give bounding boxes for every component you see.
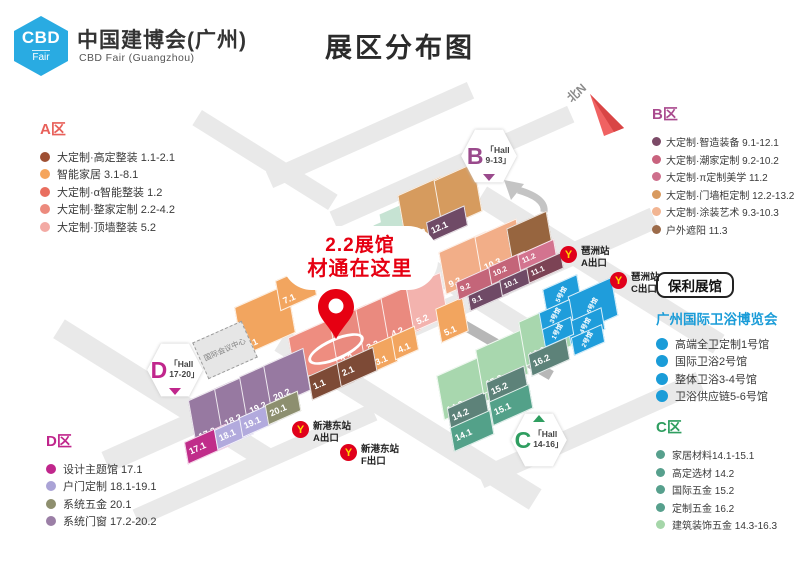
legend-zone-c: C区 家居材料14.1-15.1 高定选材 14.2 国际五金 15.2 定制五… xyxy=(656,416,777,534)
poly-expo-title: 广州国际卫浴博览会 xyxy=(656,308,778,328)
legend-dot xyxy=(656,338,668,350)
legend-dot xyxy=(46,481,56,491)
highlight-callout: 2.2展馆 材通在这里 xyxy=(282,226,438,290)
hall-label: 12.1 xyxy=(430,220,450,235)
hex-range: 「Hall14-16」 xyxy=(533,430,563,450)
hall-label: 11.1 xyxy=(530,265,546,278)
legend-dot xyxy=(40,152,50,162)
hall-label: 9.2 xyxy=(459,282,472,293)
legend-item: 高定选材 14.2 xyxy=(656,464,777,482)
legend-dot xyxy=(40,169,50,179)
legend-dot xyxy=(656,520,665,529)
legend-dot xyxy=(46,464,56,474)
legend-dot xyxy=(652,137,661,146)
hex-pointer xyxy=(169,388,181,395)
hex-range: 「Hall9-13」 xyxy=(486,146,512,166)
hall-c-marker: C 「Hall14-16」 xyxy=(510,412,568,468)
location-pin-icon xyxy=(316,288,356,340)
legend-item: 大定制·涂装艺术 9.3-10.3 xyxy=(652,203,794,221)
callout-line1: 2.2展馆 xyxy=(325,235,394,257)
metro-xingangdong-exit-f: Y 新港东站F出口 xyxy=(340,444,399,468)
cbd-fair-logo: CBD Fair xyxy=(14,16,68,76)
metro-label: 新港东站A出口 xyxy=(313,421,351,445)
legend-item: 智能家居 3.1-8.1 xyxy=(40,166,175,184)
hall-label: 16.2 xyxy=(532,353,552,368)
hall-label: 7.1 xyxy=(282,293,297,306)
hall-d-marker: D 「Hall17-20」 xyxy=(146,342,204,398)
hex-letter: D xyxy=(151,359,168,382)
hall-label: 18.1 xyxy=(218,427,238,442)
legend-dot xyxy=(656,503,665,512)
legend-item: 建筑装饰五金 14.3-16.3 xyxy=(656,516,777,534)
legend-dot xyxy=(40,204,50,214)
hex-range: 「Hall17-20」 xyxy=(169,360,199,380)
legend-dot xyxy=(652,155,661,164)
legend-item: 大定制·α智能整装 1.2 xyxy=(40,183,175,201)
hall-label: 14.1 xyxy=(454,427,474,442)
legend-item: 大定制·门墙柜定制 12.2-13.2 xyxy=(652,186,794,204)
page-title: 展区分布图 xyxy=(325,26,475,65)
legend-item: 大定制·潮家定制 9.2-10.2 xyxy=(652,151,794,169)
legend-dot xyxy=(656,485,665,494)
legend-dot xyxy=(46,516,56,526)
logo-sub: Fair xyxy=(32,50,49,63)
hall-label: 10.1 xyxy=(503,277,519,290)
hall-label: 2号馆 xyxy=(581,331,595,349)
legend-item: 国际五金 15.2 xyxy=(656,481,777,499)
hall-label: 5.2 xyxy=(415,313,430,326)
legend-item: 高端全卫定制1号馆 xyxy=(656,335,778,353)
hex-pointer xyxy=(483,174,495,181)
legend-dot xyxy=(652,225,661,234)
legend-item: 户门定制 18.1-19.1 xyxy=(46,478,157,496)
legend-item: 定制五金 16.2 xyxy=(656,499,777,517)
legend-item: 户外遮阳 11.3 xyxy=(652,221,794,239)
north-arrow-icon xyxy=(584,92,628,142)
legend-dot xyxy=(656,390,668,402)
hall-label: 4.1 xyxy=(397,342,412,355)
legend-dot xyxy=(40,222,50,232)
legend-item: 国际卫浴2号馆 xyxy=(656,353,778,371)
legend-dot xyxy=(652,172,661,181)
hall-label: 20.1 xyxy=(268,402,288,417)
legend-item: 大定制·整家定制 2.2-4.2 xyxy=(40,201,175,219)
poly-badge: 保利展馆 xyxy=(656,272,734,298)
hall-b-marker: B 「Hall9-13」 xyxy=(460,128,518,184)
hall-label: 5.1 xyxy=(443,325,458,338)
legend-item: 设计主题馆 17.1 xyxy=(46,460,157,478)
hall-label: 17.1 xyxy=(188,440,208,455)
legend-dot xyxy=(656,355,668,367)
fair-title-en: CBD Fair (Guangzhou) xyxy=(79,52,194,64)
legend-zone-d: D区 设计主题馆 17.1 户门定制 18.1-19.1 系统五金 20.1 系… xyxy=(46,430,157,530)
legend-zone-b: B区 大定制·智造装备 9.1-12.1 大定制·潮家定制 9.2-10.2 大… xyxy=(652,103,794,238)
legend-d-title: D区 xyxy=(46,430,157,451)
legend-item: 大定制·顶墙整装 5.2 xyxy=(40,218,175,236)
metro-icon: Y xyxy=(292,421,309,438)
hall-label: 1.1 xyxy=(312,378,327,391)
poly-hall-legend: 保利展馆 广州国际卫浴博览会 高端全卫定制1号馆 国际卫浴2号馆 整体卫浴3-4… xyxy=(656,272,778,405)
legend-zone-a: A区 大定制·高定整装 1.1-2.1 智能家居 3.1-8.1 大定制·α智能… xyxy=(40,118,175,236)
hex-letter: B xyxy=(467,145,484,168)
metro-icon: Y xyxy=(560,246,577,263)
metro-xingangdong-exit-a: Y 新港东站A出口 xyxy=(292,421,351,445)
exhibition-map-page: CBD Fair 中国建博会(广州) CBD Fair (Guangzhou) … xyxy=(0,0,800,569)
legend-dot xyxy=(656,450,665,459)
legend-item: 卫浴供应链5-6号馆 xyxy=(656,388,778,406)
legend-a-title: A区 xyxy=(40,118,175,139)
legend-dot xyxy=(652,190,661,199)
hall-label: 19.1 xyxy=(242,415,262,430)
legend-dot xyxy=(652,207,661,216)
legend-c-title: C区 xyxy=(656,416,777,437)
hall-label: 2.1 xyxy=(341,364,356,377)
legend-b-title: B区 xyxy=(652,103,794,124)
callout-line2: 材通在这里 xyxy=(308,258,413,281)
legend-item: 系统门窗 17.2-20.2 xyxy=(46,513,157,531)
legend-dot xyxy=(40,187,50,197)
metro-pazhou-exit-c: Y 琶洲站C出口 xyxy=(610,272,660,296)
metro-icon: Y xyxy=(340,444,357,461)
metro-pazhou-exit-a: Y 琶洲站A出口 xyxy=(560,246,610,270)
metro-label: 琶洲站A出口 xyxy=(581,246,610,270)
legend-dot xyxy=(46,499,56,509)
legend-item: 大定制·π定制美学 11.2 xyxy=(652,168,794,186)
hall-label: 9.1 xyxy=(471,294,484,305)
legend-item: 整体卫浴3-4号馆 xyxy=(656,370,778,388)
hex-letter: C xyxy=(515,429,532,452)
legend-item: 系统五金 20.1 xyxy=(46,495,157,513)
legend-item: 大定制·智造装备 9.1-12.1 xyxy=(652,133,794,151)
metro-icon: Y xyxy=(610,272,627,289)
legend-dot xyxy=(656,373,668,385)
logo-abbr: CBD xyxy=(22,29,60,48)
hall-label: 1号馆 xyxy=(551,323,565,341)
legend-item: 大定制·高定整装 1.1-2.1 xyxy=(40,148,175,166)
legend-dot xyxy=(656,468,665,477)
metro-label: 新港东站F出口 xyxy=(361,444,399,468)
legend-item: 家居材料14.1-15.1 xyxy=(656,446,777,464)
fair-title-cn: 中国建博会(广州) xyxy=(77,24,247,54)
hex-pointer xyxy=(533,415,545,422)
